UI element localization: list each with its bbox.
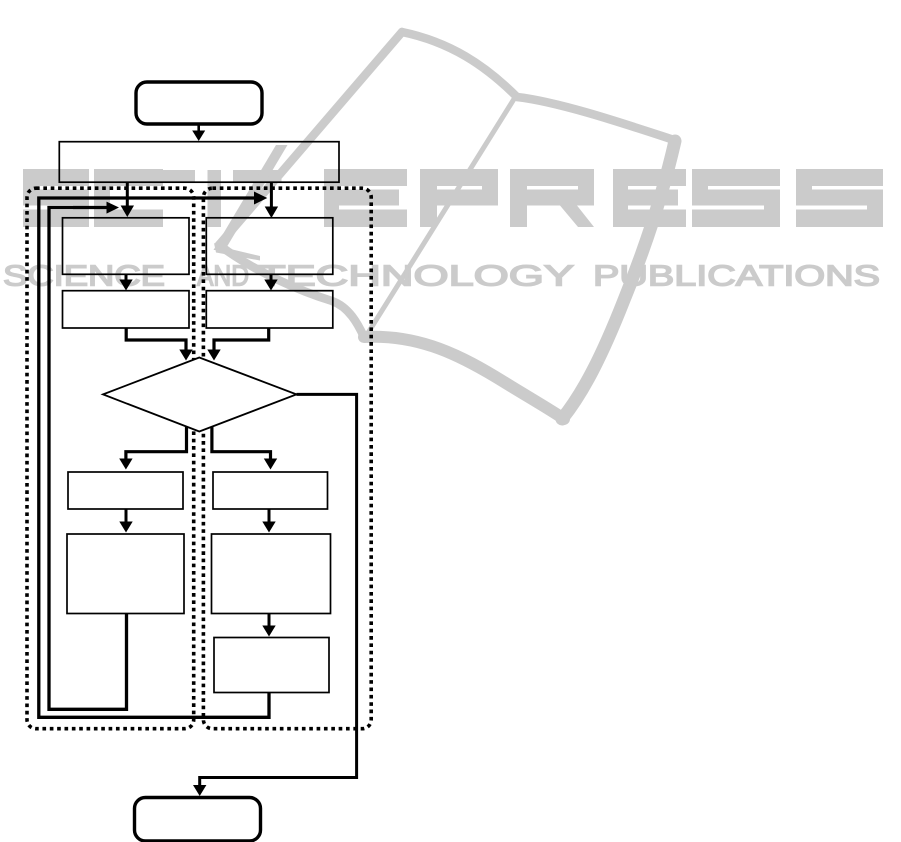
svg-text:PUBLICATIONS: PUBLICATIONS [593,261,880,293]
svg-text:AND: AND [197,261,249,293]
svg-text:SCIENCE: SCIENCE [3,261,165,293]
svg-text:TECHNOLOGY: TECHNOLOGY [258,261,574,293]
